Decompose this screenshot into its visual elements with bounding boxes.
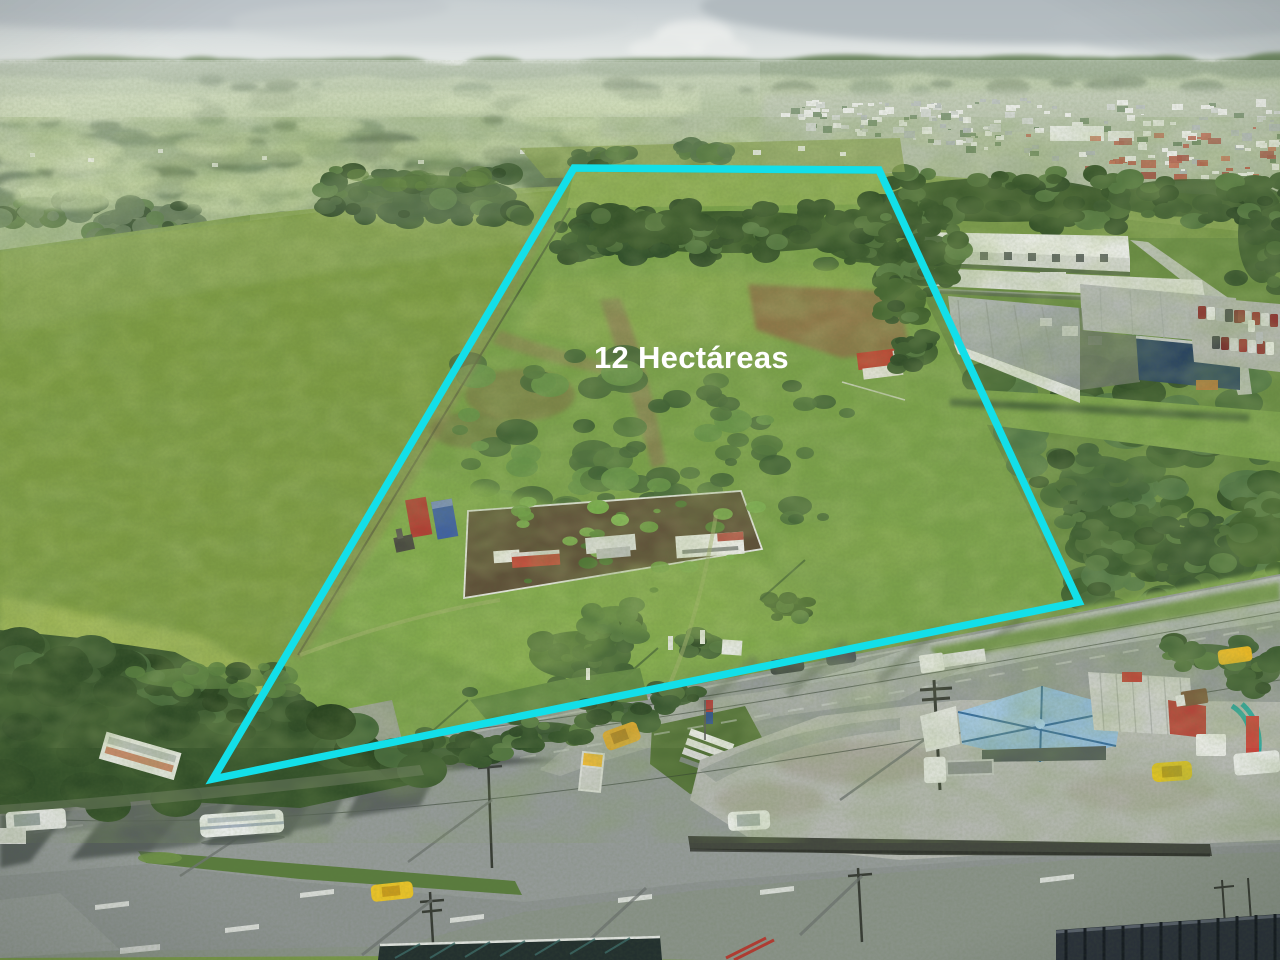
svg-text:12 Hectáreas: 12 Hectáreas	[594, 340, 789, 375]
